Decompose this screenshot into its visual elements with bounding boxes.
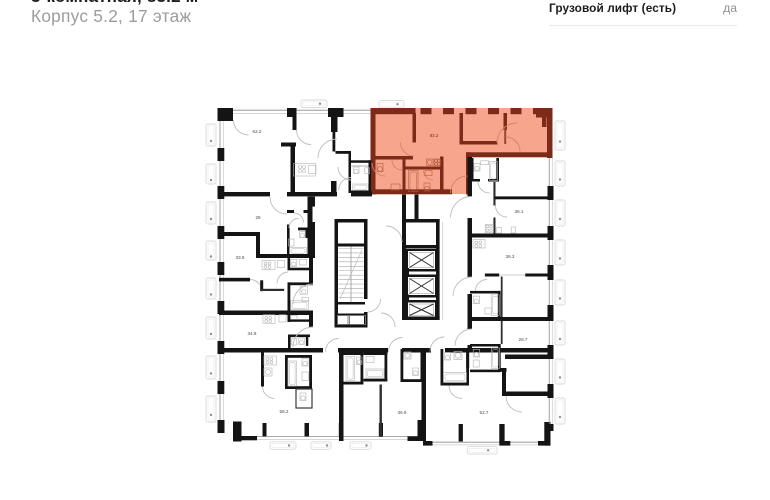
svg-text:34.8: 34.8 (248, 331, 257, 336)
svg-text:62.2: 62.2 (253, 129, 262, 134)
svg-text:58.2: 58.2 (280, 409, 289, 414)
svg-text:36.1: 36.1 (515, 209, 524, 214)
svg-text:28.7: 28.7 (519, 337, 528, 342)
svg-text:83.2: 83.2 (430, 133, 439, 138)
svg-text:33.9: 33.9 (236, 255, 245, 260)
svg-text:36.3: 36.3 (506, 254, 515, 259)
svg-text:52.7: 52.7 (480, 410, 489, 415)
svg-text:36.9: 36.9 (398, 410, 407, 415)
svg-text:26: 26 (255, 215, 261, 220)
